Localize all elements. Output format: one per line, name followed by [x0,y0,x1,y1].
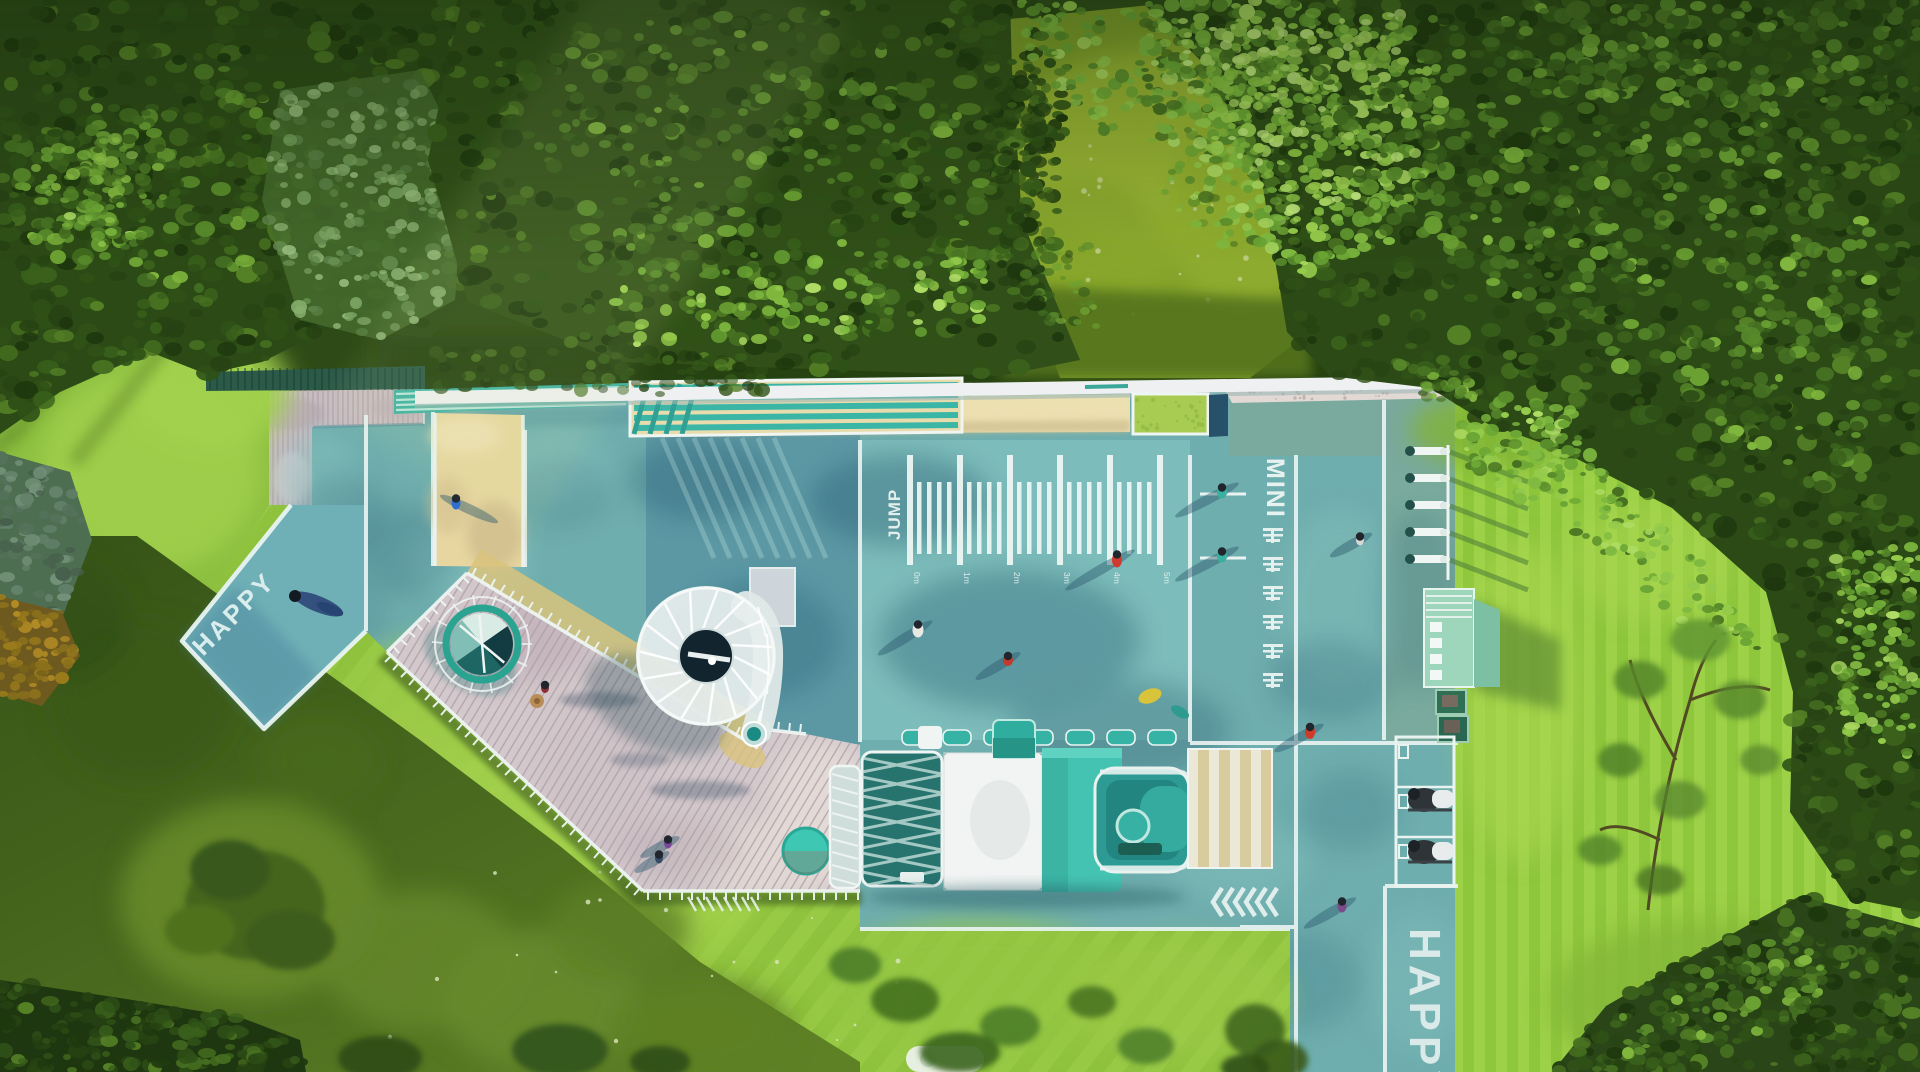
svg-text:HAPPY: HAPPY [1400,928,1449,1072]
svg-text:0m: 0m [912,572,922,584]
svg-text:1m: 1m [962,572,972,584]
svg-text:JUMP: JUMP [885,489,904,540]
svg-text:2m: 2m [1012,572,1022,584]
svg-text:5m: 5m [1162,572,1172,584]
svg-text:MINI: MINI [1261,458,1289,519]
svg-text:3m: 3m [1062,572,1072,584]
svg-text:4m: 4m [1112,572,1122,584]
